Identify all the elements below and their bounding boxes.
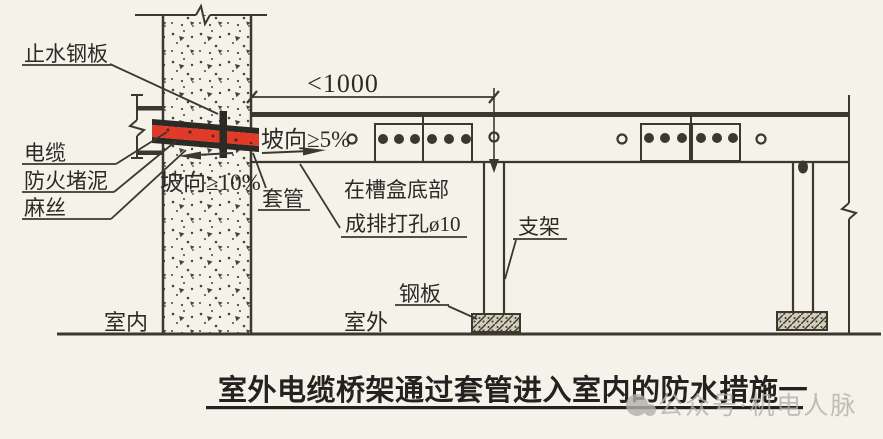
base-steel-plate-2 (777, 312, 827, 330)
water-stop-plate-bar (220, 111, 228, 158)
label-steel-plate: 钢板 (399, 282, 441, 306)
diagram-canvas: <1000 止水钢板 电缆 防火堵泥 麻丝 坡向≥10% 坡向≥5% 套管 在槽… (0, 0, 883, 439)
label-slope-tray: 坡向≥5% (261, 127, 350, 152)
base-steel-plate-1 (472, 314, 520, 332)
label-holes-note-1: 在槽盒底部 (344, 178, 449, 202)
dimension-text: <1000 (307, 69, 379, 98)
label-bracket: 支架 (518, 215, 560, 239)
label-holes-note-2: 成排打孔ø10 (345, 212, 461, 236)
label-fireproof-mud: 防火堵泥 (24, 169, 108, 193)
label-cable: 电缆 (24, 141, 66, 165)
post-2-anchor-bolt (798, 161, 808, 174)
watermark: 公众号·机电人脉 (626, 392, 857, 420)
tray-top-rail (251, 112, 849, 117)
label-hemp-fiber: 麻丝 (24, 196, 66, 220)
label-indoor: 室内 (104, 310, 148, 335)
label-water-stop-plate: 止水钢板 (24, 42, 108, 66)
label-slope-wall: 坡向≥10% (160, 170, 261, 195)
label-outdoor: 室外 (344, 310, 388, 335)
label-sleeve: 套管 (262, 187, 304, 211)
watermark-text: 公众号·机电人脉 (658, 392, 857, 420)
waterproofing-detail-drawing: <1000 止水钢板 电缆 防火堵泥 麻丝 坡向≥10% 坡向≥5% 套管 在槽… (0, 0, 883, 439)
watermark-logo-icon-small (644, 404, 656, 416)
